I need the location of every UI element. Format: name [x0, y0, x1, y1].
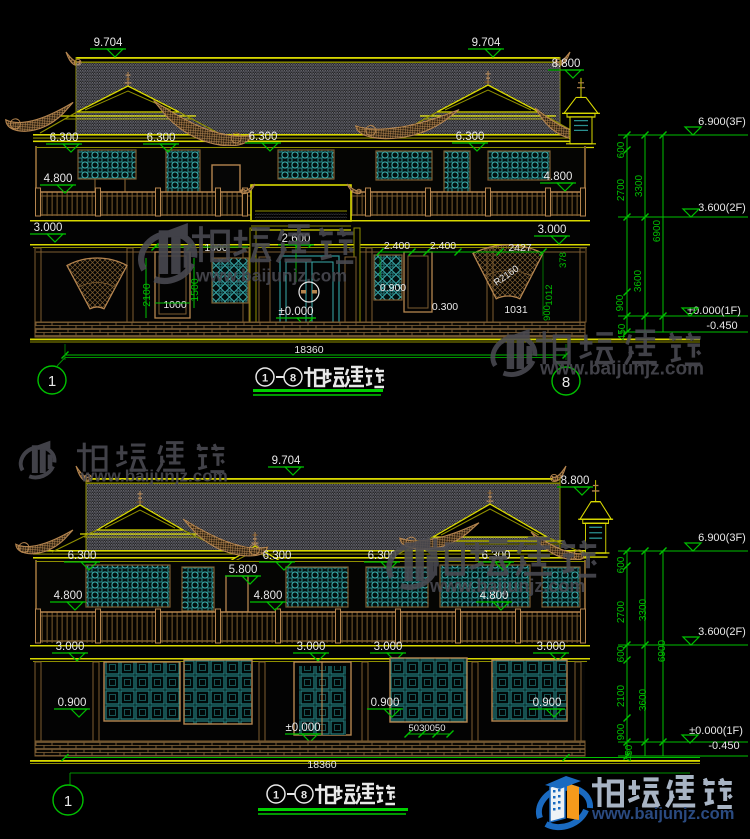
svg-text:0.300: 0.300: [432, 301, 458, 313]
svg-text:600: 600: [616, 141, 627, 158]
svg-text:450: 450: [624, 744, 635, 761]
svg-text:3300: 3300: [634, 174, 645, 197]
svg-text:2.400: 2.400: [430, 240, 456, 252]
svg-text:4.800: 4.800: [254, 590, 283, 602]
svg-text:6.900(3F): 6.900(3F): [698, 532, 746, 544]
svg-text:±0.000: ±0.000: [278, 306, 313, 318]
svg-text:18360: 18360: [294, 344, 323, 356]
svg-text:5.800: 5.800: [229, 564, 258, 576]
svg-text:2.400: 2.400: [384, 240, 410, 252]
svg-text:8.800: 8.800: [561, 475, 590, 487]
svg-text:-0.450: -0.450: [706, 320, 737, 332]
svg-text:www.baijunjz.com: www.baijunjz.com: [195, 265, 347, 285]
svg-text:600: 600: [616, 645, 627, 662]
svg-text:6.300: 6.300: [50, 132, 79, 144]
svg-text:9.704: 9.704: [94, 37, 123, 49]
svg-text:3.600(2F): 3.600(2F): [698, 202, 746, 214]
svg-text:0.900: 0.900: [371, 697, 400, 709]
svg-text:8.800: 8.800: [552, 58, 581, 70]
svg-text:900: 900: [615, 294, 626, 311]
svg-text:2100: 2100: [141, 283, 153, 307]
svg-text:www.baijunjz.com: www.baijunjz.com: [539, 359, 704, 380]
svg-text:6900: 6900: [657, 639, 668, 662]
svg-text:378: 378: [558, 252, 569, 268]
svg-text:4.800: 4.800: [54, 590, 83, 602]
svg-text:3300: 3300: [638, 598, 649, 621]
svg-text:3.000: 3.000: [56, 641, 85, 653]
svg-text:1: 1: [48, 373, 56, 390]
svg-text:9.704: 9.704: [472, 37, 501, 49]
svg-text:8: 8: [301, 790, 307, 802]
svg-text:6.300: 6.300: [147, 132, 176, 144]
svg-text:2100: 2100: [616, 684, 627, 707]
svg-text:900: 900: [616, 723, 627, 740]
svg-text:3.000: 3.000: [34, 222, 63, 234]
svg-text:6.300: 6.300: [263, 550, 292, 562]
svg-text:-0.450: -0.450: [708, 740, 739, 752]
svg-text:3.600(2F): 3.600(2F): [698, 626, 746, 638]
svg-text:1031: 1031: [504, 304, 528, 316]
svg-text:3.000: 3.000: [374, 641, 403, 653]
svg-text:18360: 18360: [307, 759, 336, 771]
svg-text:3.000: 3.000: [297, 641, 326, 653]
svg-text:2700: 2700: [616, 178, 627, 201]
svg-text:±0.000: ±0.000: [285, 722, 320, 734]
svg-text:5030050: 5030050: [409, 723, 446, 734]
svg-text:6.900(3F): 6.900(3F): [698, 116, 746, 128]
svg-text:3600: 3600: [633, 269, 644, 292]
svg-text:600: 600: [616, 556, 627, 573]
svg-text:0.900: 0.900: [58, 697, 87, 709]
svg-text:6900: 6900: [652, 219, 663, 242]
svg-text:www.baijunjz.com: www.baijunjz.com: [591, 805, 734, 823]
svg-text:www.baijunjz.com: www.baijunjz.com: [80, 467, 228, 486]
svg-text:3.000: 3.000: [537, 641, 566, 653]
svg-text:1: 1: [262, 373, 268, 385]
svg-text:3.000: 3.000: [538, 224, 567, 236]
svg-text:6.300: 6.300: [249, 131, 278, 143]
svg-text:4.800: 4.800: [44, 173, 73, 185]
svg-text:450: 450: [617, 323, 628, 340]
svg-text:900: 900: [542, 305, 553, 321]
svg-text:8: 8: [290, 373, 296, 385]
svg-text:3600: 3600: [638, 688, 649, 711]
svg-text:6.300: 6.300: [456, 131, 485, 143]
svg-text:6.300: 6.300: [68, 550, 97, 562]
svg-text:1000: 1000: [163, 299, 187, 311]
svg-text:www.baijunjz.com: www.baijunjz.com: [429, 576, 585, 596]
svg-text:0.900: 0.900: [380, 282, 406, 294]
svg-text:1000: 1000: [204, 242, 228, 254]
svg-text:2700: 2700: [616, 600, 627, 623]
svg-text:4.800: 4.800: [544, 171, 573, 183]
svg-text:9.704: 9.704: [272, 455, 301, 467]
svg-text:1: 1: [273, 790, 279, 802]
svg-text:1012: 1012: [544, 284, 555, 305]
svg-text:1: 1: [64, 793, 72, 810]
svg-text:0.900: 0.900: [533, 697, 562, 709]
